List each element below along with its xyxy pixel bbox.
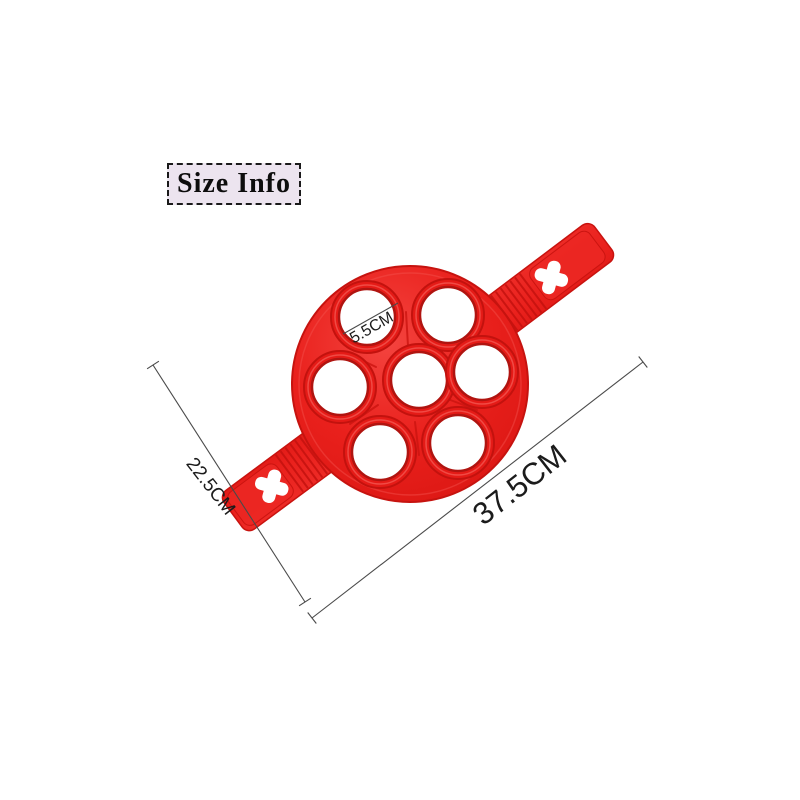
mold-hole — [344, 416, 416, 488]
product-illustration: 5.5CM 22.5CM 37.5CM — [0, 0, 800, 800]
size-info-image: 5.5CM 22.5CM 37.5CM Size Info — [0, 0, 800, 800]
dimension-tick — [639, 357, 648, 368]
mold-hole — [304, 351, 376, 423]
dimension-tick — [147, 361, 159, 369]
dimension-tick — [308, 613, 317, 624]
size-info-badge-label: Size Info — [177, 168, 291, 200]
mold-hole — [383, 344, 455, 416]
size-info-badge: Size Info — [167, 163, 301, 205]
mold-hole — [446, 336, 518, 408]
mold-hole — [422, 407, 494, 479]
dimension-tick — [299, 598, 311, 606]
